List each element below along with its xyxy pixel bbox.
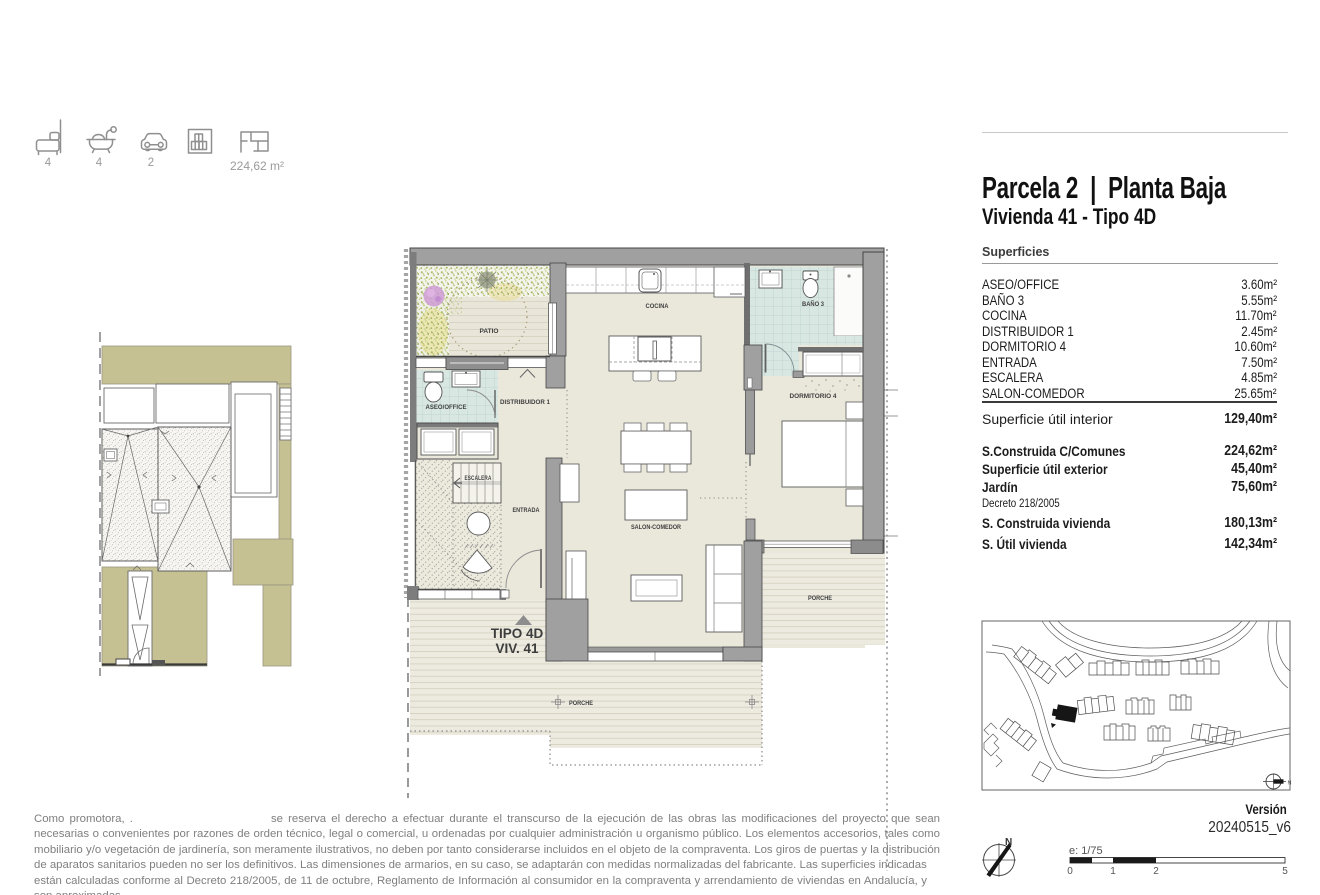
svg-text:TIPO 4D: TIPO 4D	[491, 626, 544, 641]
svg-text:PATIO: PATIO	[480, 328, 499, 335]
svg-text:ESCALERA: ESCALERA	[465, 475, 492, 482]
svg-text:N: N	[1288, 781, 1292, 787]
svg-text:DORMITORIO 4: DORMITORIO 4	[790, 393, 838, 400]
svg-text:BAÑO 3: BAÑO 3	[802, 301, 825, 308]
svg-text:PORCHE: PORCHE	[569, 700, 593, 707]
svg-text:5: 5	[1282, 866, 1288, 877]
svg-text:e: 1/75: e: 1/75	[1069, 845, 1103, 857]
svg-text:VIV. 41: VIV. 41	[495, 641, 539, 656]
svg-text:COCINA: COCINA	[646, 303, 670, 310]
svg-text:224,62 m²: 224,62 m²	[230, 159, 284, 173]
svg-text:ASEO/OFFICE: ASEO/OFFICE	[426, 404, 467, 411]
svg-text:4: 4	[45, 157, 52, 169]
svg-text:ENTRADA: ENTRADA	[513, 507, 540, 514]
svg-text:2: 2	[148, 157, 154, 169]
svg-text:N: N	[1005, 837, 1012, 848]
svg-text:4: 4	[96, 157, 103, 169]
svg-text:2: 2	[1153, 866, 1159, 877]
svg-text:1: 1	[1110, 866, 1116, 877]
svg-text:SALON-COMEDOR: SALON-COMEDOR	[631, 524, 681, 531]
svg-text:PORCHE: PORCHE	[808, 595, 832, 602]
svg-text:0: 0	[1067, 866, 1073, 877]
svg-text:DISTRIBUIDOR 1: DISTRIBUIDOR 1	[500, 399, 551, 406]
